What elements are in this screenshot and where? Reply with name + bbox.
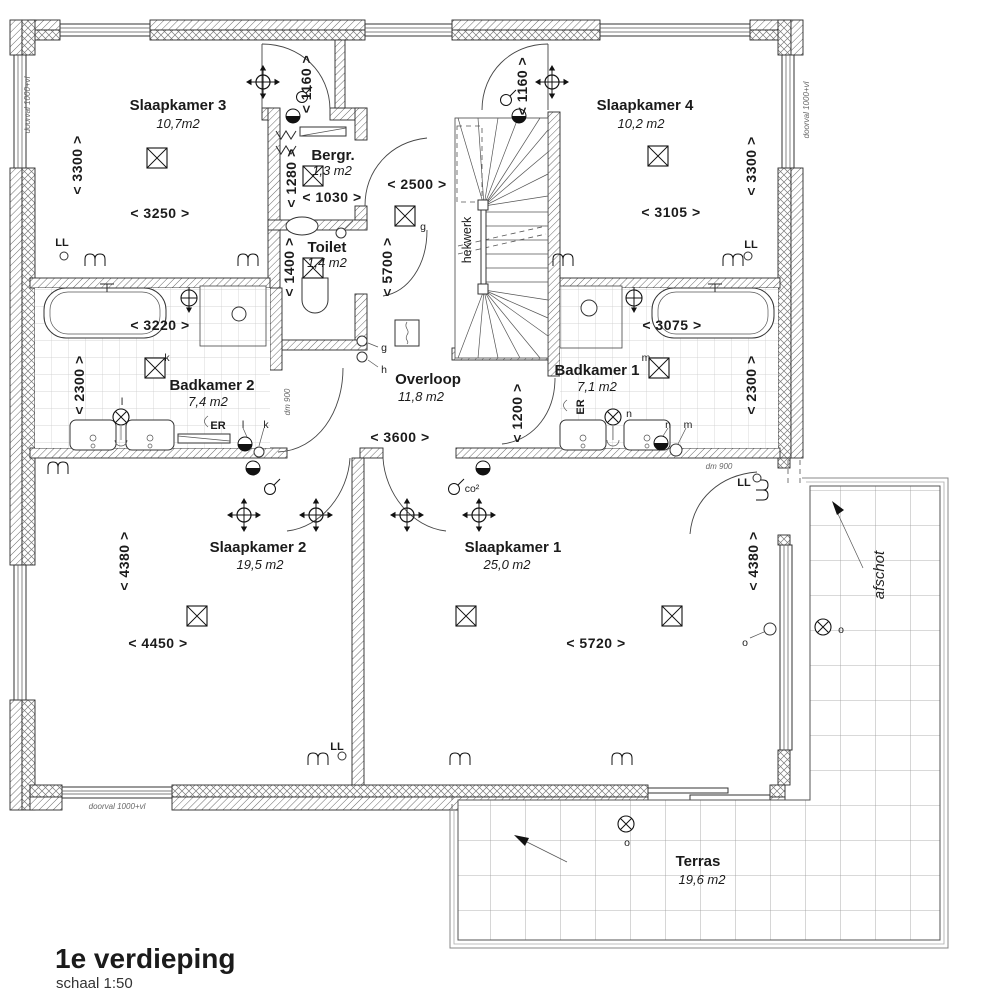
room-area-slaapkamer1: 25,0 m2: [483, 557, 532, 572]
room-name-terras: Terras: [676, 853, 721, 870]
room-area-terras: 19,6 m2: [679, 872, 727, 887]
room-name-overloop: Overloop: [395, 371, 461, 388]
stair-railing: [481, 204, 486, 290]
ceiling-box-icon: [649, 358, 669, 378]
label-m: m: [684, 419, 693, 431]
ceiling-box-icon: [147, 148, 167, 168]
ventilation-icon: [390, 498, 424, 532]
dim-s2-width: < 4450 >: [128, 635, 187, 651]
dim-bk2-height: < 2300 >: [71, 355, 87, 414]
label-o: o: [838, 624, 844, 636]
dim-berg-width: < 1030 >: [302, 189, 361, 205]
label-n: n: [626, 408, 632, 420]
smoke-detector-icon: [476, 461, 490, 475]
room-name-slaapkamer2: Slaapkamer 2: [210, 539, 307, 556]
dim-s3-height: < 3300 >: [69, 135, 85, 194]
label-k: k: [164, 352, 170, 364]
room-name-slaapkamer1: Slaapkamer 1: [465, 539, 562, 556]
radiator-icon: [85, 254, 105, 266]
room-area-slaapkamer3: 10,7m2: [156, 116, 200, 131]
dim-overloop-height: < 5700 >: [379, 237, 395, 296]
label-er: ER: [575, 399, 587, 414]
floor-plan-svg: hekwerk: [0, 0, 986, 1000]
dim-overloop-top: < 2500 >: [387, 176, 446, 192]
label-h: h: [381, 364, 387, 376]
dim-door-s3: < 1160 >: [298, 55, 314, 114]
label-dm900: dm 900: [706, 462, 733, 471]
page-title: 1e verdieping: [55, 943, 236, 974]
door-bergruimte: [365, 138, 427, 206]
window-top-right: [600, 24, 750, 36]
room-name-toilet: Toilet: [308, 239, 347, 256]
label-m: m: [642, 352, 651, 364]
dim-corridor: < 1200 >: [509, 383, 525, 442]
dim-toilet-height: < 1400 >: [281, 237, 297, 296]
room-area-badkamer2: 7,4 m2: [188, 394, 229, 409]
radiator-icon: [450, 753, 470, 765]
terras-lamp-icon: [618, 816, 634, 832]
room-area-toilet: 1,4 m2: [307, 255, 348, 270]
ventilation-icon: [227, 498, 261, 532]
dim-bk1-width: < 3075 >: [642, 317, 701, 333]
label-n: n: [665, 419, 671, 431]
room-labels: Slaapkamer 3 10,7m2 Slaapkamer 4 10,2 m2…: [130, 97, 727, 887]
room-name-slaapkamer4: Slaapkamer 4: [597, 97, 694, 114]
label-co2: co²: [465, 483, 480, 495]
window-top-left: [60, 24, 150, 36]
room-name-bergruimte: Bergr.: [311, 147, 354, 164]
label-l: l: [242, 419, 244, 431]
ventilation-icon: [462, 498, 496, 532]
label-ll: LL: [744, 239, 758, 251]
label-o: o: [624, 837, 630, 849]
ceiling-box-icon: [648, 146, 668, 166]
dim-s2-height: < 4380 >: [116, 531, 132, 590]
floor-plan-sheet: hekwerk: [0, 0, 986, 1000]
label-dm900: dm 900: [283, 388, 292, 415]
switch-icon: [449, 479, 465, 495]
radiator-icon: [238, 254, 258, 266]
label-er: ER: [210, 420, 225, 432]
dim-overloop-width: < 3600 >: [370, 429, 429, 445]
label-doorval-bottom: doorval 1000+vl: [89, 802, 146, 811]
room-area-overloop: 11,8 m2: [398, 389, 445, 404]
dim-bk1-height: < 2300 >: [743, 355, 759, 414]
label-ll: LL: [330, 741, 344, 753]
wall-lamp-icon: [605, 409, 621, 425]
radiator-icon: [308, 753, 328, 765]
label-doorval-right: doorval 1000+vl: [802, 81, 811, 138]
label-o: o: [742, 637, 748, 649]
room-area-slaapkamer4: 10,2 m2: [618, 116, 666, 131]
ceiling-box-icon: [662, 606, 682, 626]
dim-s1-height: < 4380 >: [745, 531, 761, 590]
door-slaapkamer1: [383, 458, 446, 531]
staircase: hekwerk: [455, 118, 548, 358]
dim-s1-width: < 5720 >: [566, 635, 625, 651]
room-name-slaapkamer3: Slaapkamer 3: [130, 97, 227, 114]
room-area-bergruimte: 1,3 m2: [312, 163, 353, 178]
meter-box-icon: [395, 320, 419, 346]
dim-s4-width: < 3105 >: [641, 204, 700, 220]
ceiling-box-icon: [187, 606, 207, 626]
radiator-slaapkamer1-right: [756, 480, 768, 500]
scale-label: schaal 1:50: [56, 975, 133, 992]
switch-icon: [265, 479, 281, 495]
ceiling-box-icon: [456, 606, 476, 626]
window-left-lower: [14, 565, 26, 700]
room-name-badkamer2: Badkamer 2: [169, 377, 254, 394]
label-g: g: [381, 342, 387, 354]
dim-berg-height: < 1280 >: [283, 148, 299, 207]
label-k: k: [263, 419, 269, 431]
radiator-icon: [48, 462, 68, 474]
label-afschot: afschot: [871, 550, 888, 599]
window-right-upper: [782, 55, 794, 168]
room-name-badkamer1: Badkamer 1: [554, 362, 639, 379]
room-area-badkamer1: 7,1 m2: [577, 379, 618, 394]
hekwerk-label: hekwerk: [460, 216, 474, 263]
dim-s3-width: < 3250 >: [130, 205, 189, 221]
wall-lamp-icon: [113, 409, 129, 425]
ceiling-box-icon: [145, 358, 165, 378]
terrace-lamp-icon: [815, 619, 831, 635]
label-g: g: [420, 221, 426, 233]
ceiling-box-icon: [395, 206, 415, 226]
label-l: l: [121, 396, 123, 408]
dim-bk2-width: < 3220 >: [130, 317, 189, 333]
window-right-lower: [780, 545, 792, 750]
door-slaapkamer2: [287, 458, 350, 531]
label-doorval-left: doorval 1000+vl: [23, 76, 32, 133]
label-ll: LL: [55, 237, 69, 249]
door-slaapkamer3: [262, 44, 330, 110]
dim-door-s4: < 1160 >: [514, 57, 530, 116]
ventilation-icon: [246, 65, 280, 99]
dim-s4-height: < 3300 >: [743, 136, 759, 195]
radiator-icon: [723, 254, 743, 266]
window-bottom-left: [62, 787, 172, 798]
room-area-slaapkamer2: 19,5 m2: [237, 557, 285, 572]
window-top-middle: [365, 24, 452, 36]
radiator-icon: [612, 753, 632, 765]
smoke-detector-icon: [246, 461, 260, 475]
ventilation-icon: [535, 65, 569, 99]
wall-light-icon: [764, 623, 776, 635]
label-ll: LL: [737, 477, 751, 489]
title-block: 1e verdieping schaal 1:50: [55, 943, 236, 992]
